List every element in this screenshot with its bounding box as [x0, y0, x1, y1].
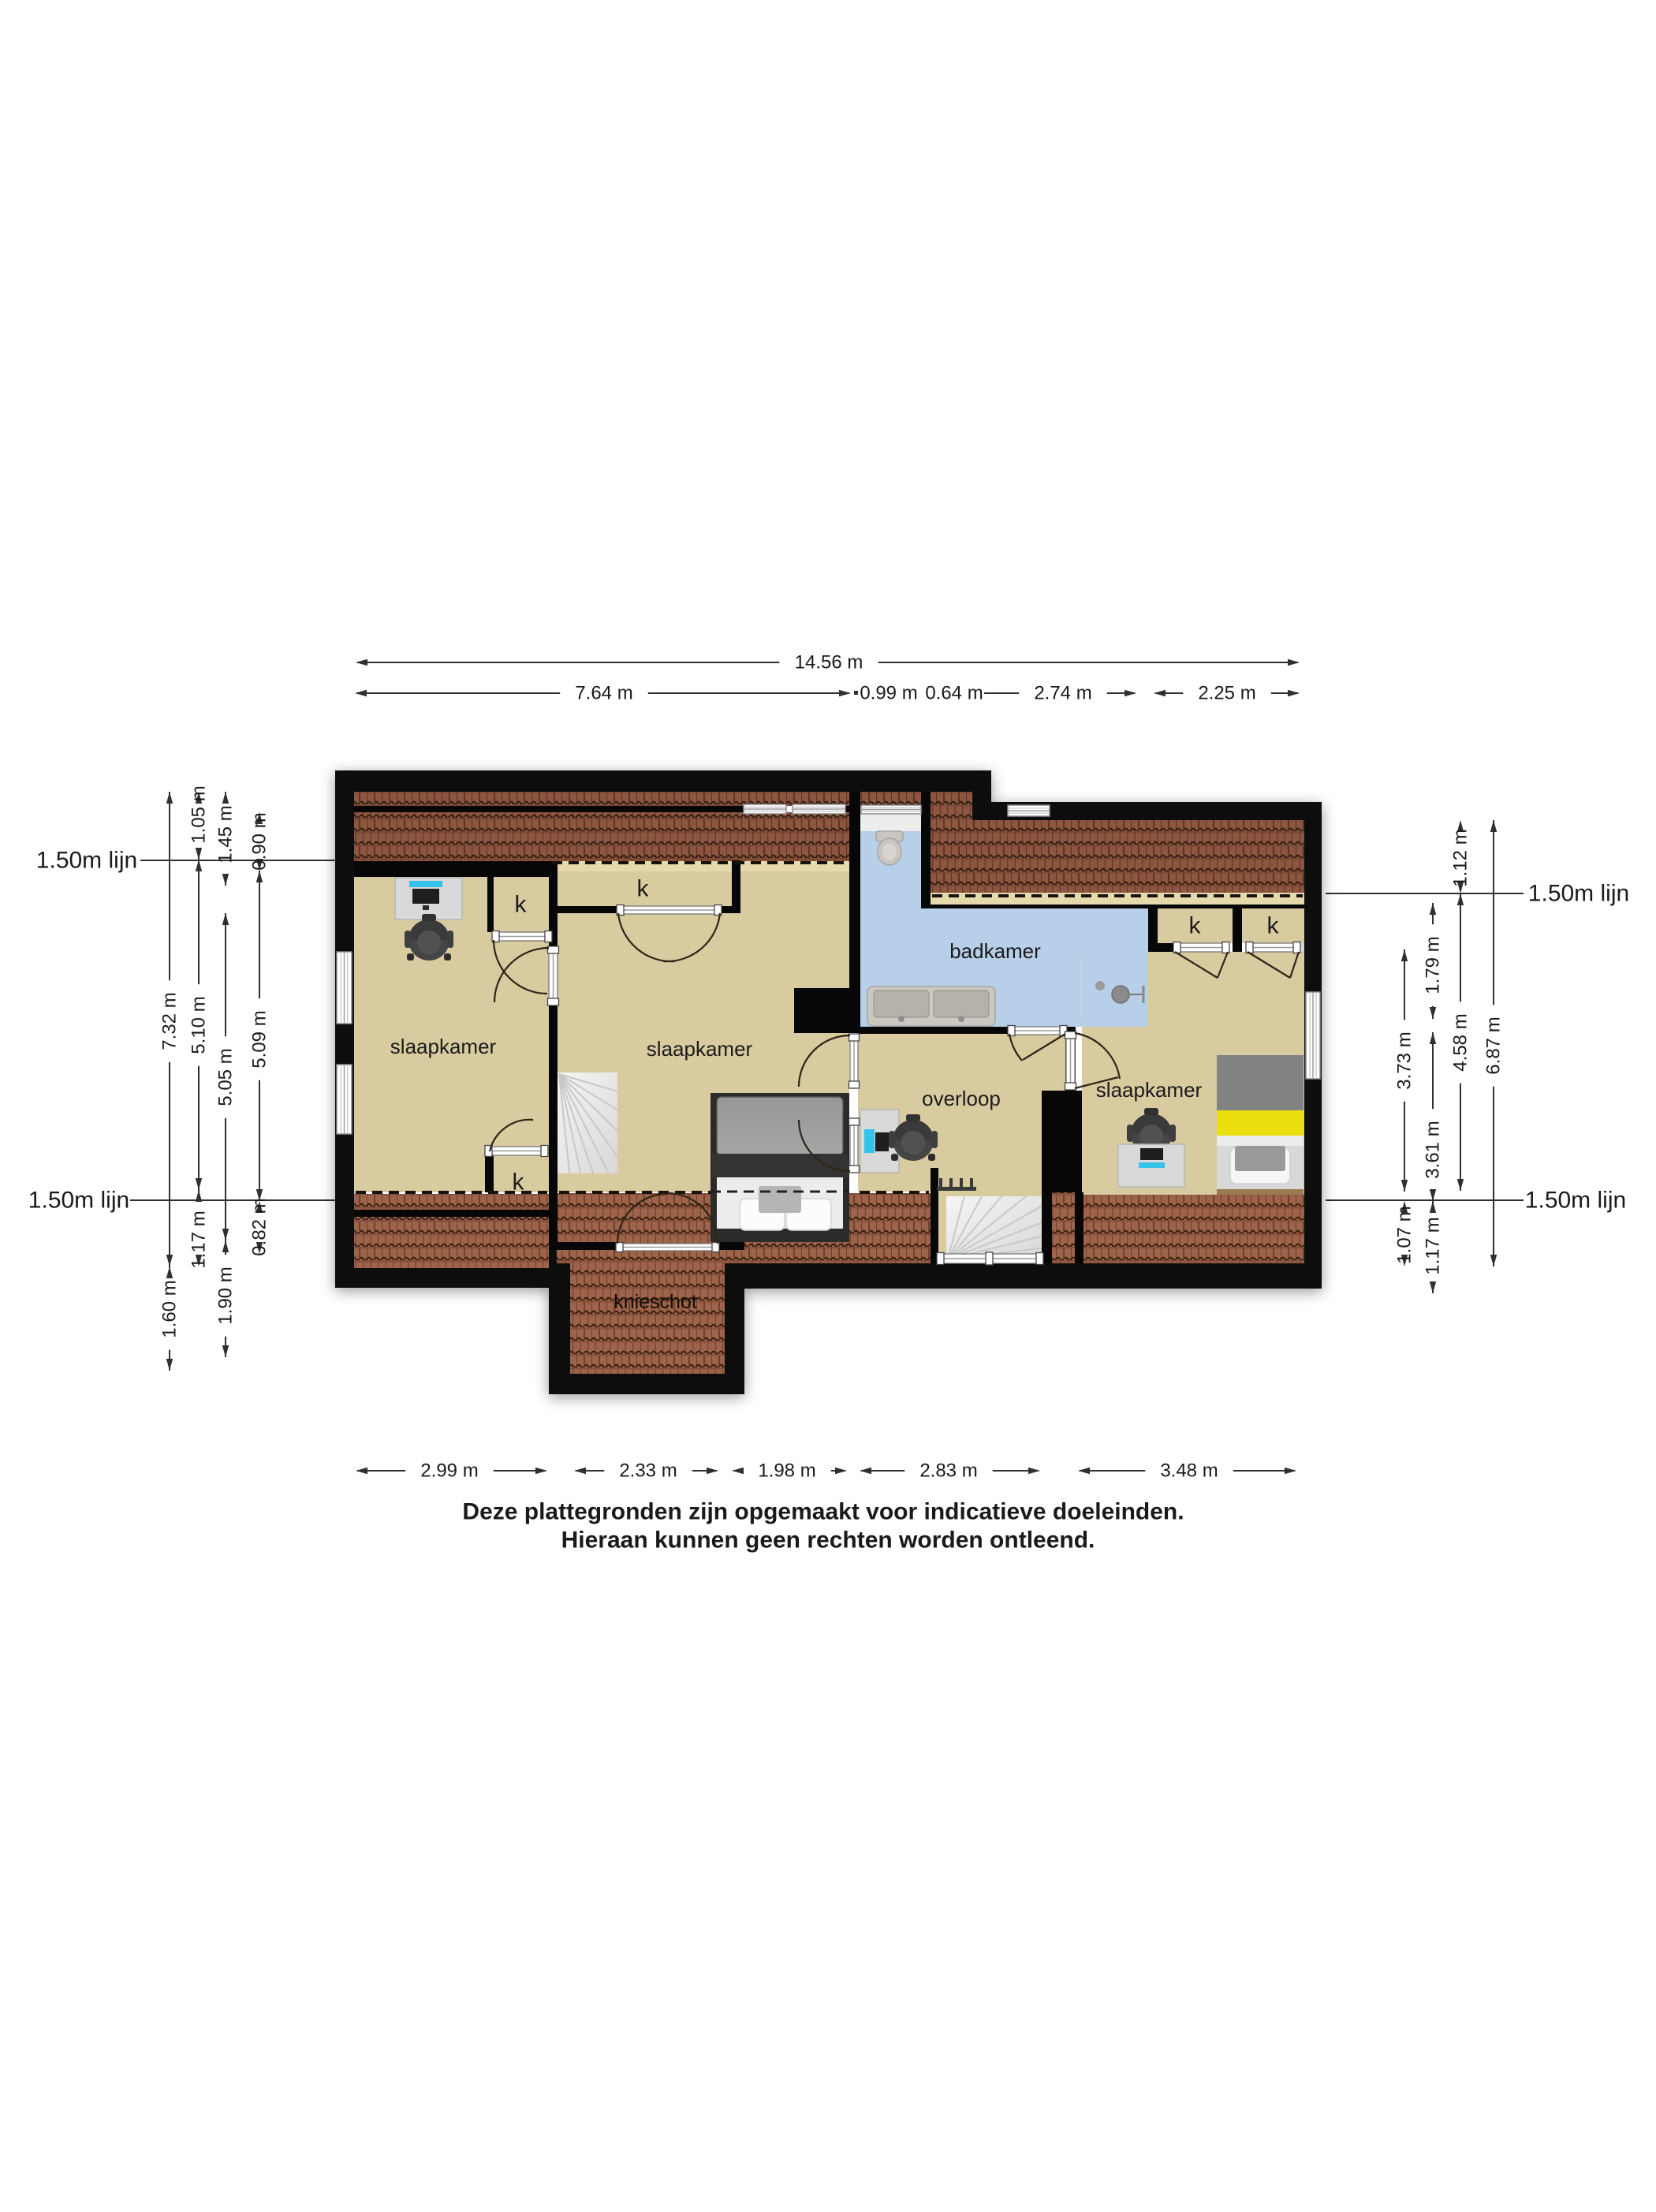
svg-text:14.56 m: 14.56 m	[795, 652, 863, 673]
svg-text:1.45 m: 1.45 m	[215, 805, 237, 863]
svg-text:1.50m lijn: 1.50m lijn	[1528, 881, 1629, 907]
svg-text:7.32 m: 7.32 m	[159, 992, 181, 1050]
svg-text:3.73 m: 3.73 m	[1394, 1031, 1415, 1089]
svg-text:1.07 m: 1.07 m	[1394, 1206, 1415, 1263]
svg-text:3.61 m: 3.61 m	[1423, 1121, 1444, 1178]
svg-text:slaapkamer: slaapkamer	[647, 1037, 753, 1061]
svg-text:0.99 m: 0.99 m	[860, 683, 917, 704]
svg-text:4.58 m: 4.58 m	[1450, 1013, 1471, 1071]
svg-text:1.50m lijn: 1.50m lijn	[36, 848, 137, 874]
svg-text:slaapkamer: slaapkamer	[390, 1035, 497, 1058]
svg-text:1.05 m: 1.05 m	[188, 785, 210, 843]
svg-text:1.90 m: 1.90 m	[215, 1266, 237, 1324]
svg-text:6.87 m: 6.87 m	[1483, 1016, 1505, 1074]
svg-text:1.12 m: 1.12 m	[1450, 829, 1471, 886]
svg-text:1.60 m: 1.60 m	[159, 1280, 181, 1337]
svg-text:k: k	[513, 1169, 525, 1196]
svg-text:k: k	[637, 876, 650, 902]
svg-text:0.90 m: 0.90 m	[249, 812, 270, 870]
svg-text:Hieraan kunnen geen rechten wo: Hieraan kunnen geen rechten worden ontle…	[561, 1528, 1095, 1554]
svg-text:2.25 m: 2.25 m	[1198, 683, 1255, 704]
svg-text:1.50m lijn: 1.50m lijn	[1525, 1188, 1626, 1214]
svg-text:1.79 m: 1.79 m	[1423, 936, 1444, 994]
svg-text:knieschot: knieschot	[614, 1291, 697, 1313]
svg-text:k: k	[515, 892, 528, 918]
svg-text:5.09 m: 5.09 m	[249, 1010, 270, 1068]
svg-text:2.33 m: 2.33 m	[619, 1460, 677, 1482]
svg-text:5.05 m: 5.05 m	[215, 1048, 237, 1106]
svg-text:overloop: overloop	[922, 1087, 1001, 1110]
svg-text:2.83 m: 2.83 m	[919, 1460, 977, 1482]
svg-text:1.17 m: 1.17 m	[1423, 1217, 1444, 1274]
svg-text:k: k	[1189, 913, 1202, 939]
svg-text:2.99 m: 2.99 m	[420, 1460, 478, 1482]
svg-text:1.17 m: 1.17 m	[188, 1210, 210, 1268]
svg-text:0.64 m: 0.64 m	[925, 683, 983, 704]
svg-text:Deze plattegronden zijn opgema: Deze plattegronden zijn opgemaakt voor i…	[462, 1499, 1184, 1525]
svg-text:7.64 m: 7.64 m	[575, 683, 632, 704]
svg-text:slaapkamer: slaapkamer	[1096, 1078, 1203, 1102]
svg-text:badkamer: badkamer	[949, 939, 1041, 963]
svg-text:1.50m lijn: 1.50m lijn	[28, 1188, 129, 1214]
svg-text:k: k	[1267, 913, 1280, 939]
svg-text:3.48 m: 3.48 m	[1160, 1460, 1218, 1482]
svg-text:5.10 m: 5.10 m	[188, 996, 210, 1054]
svg-text:2.74 m: 2.74 m	[1034, 683, 1091, 704]
svg-text:1.98 m: 1.98 m	[758, 1460, 815, 1482]
svg-text:0.82 m: 0.82 m	[249, 1198, 270, 1255]
